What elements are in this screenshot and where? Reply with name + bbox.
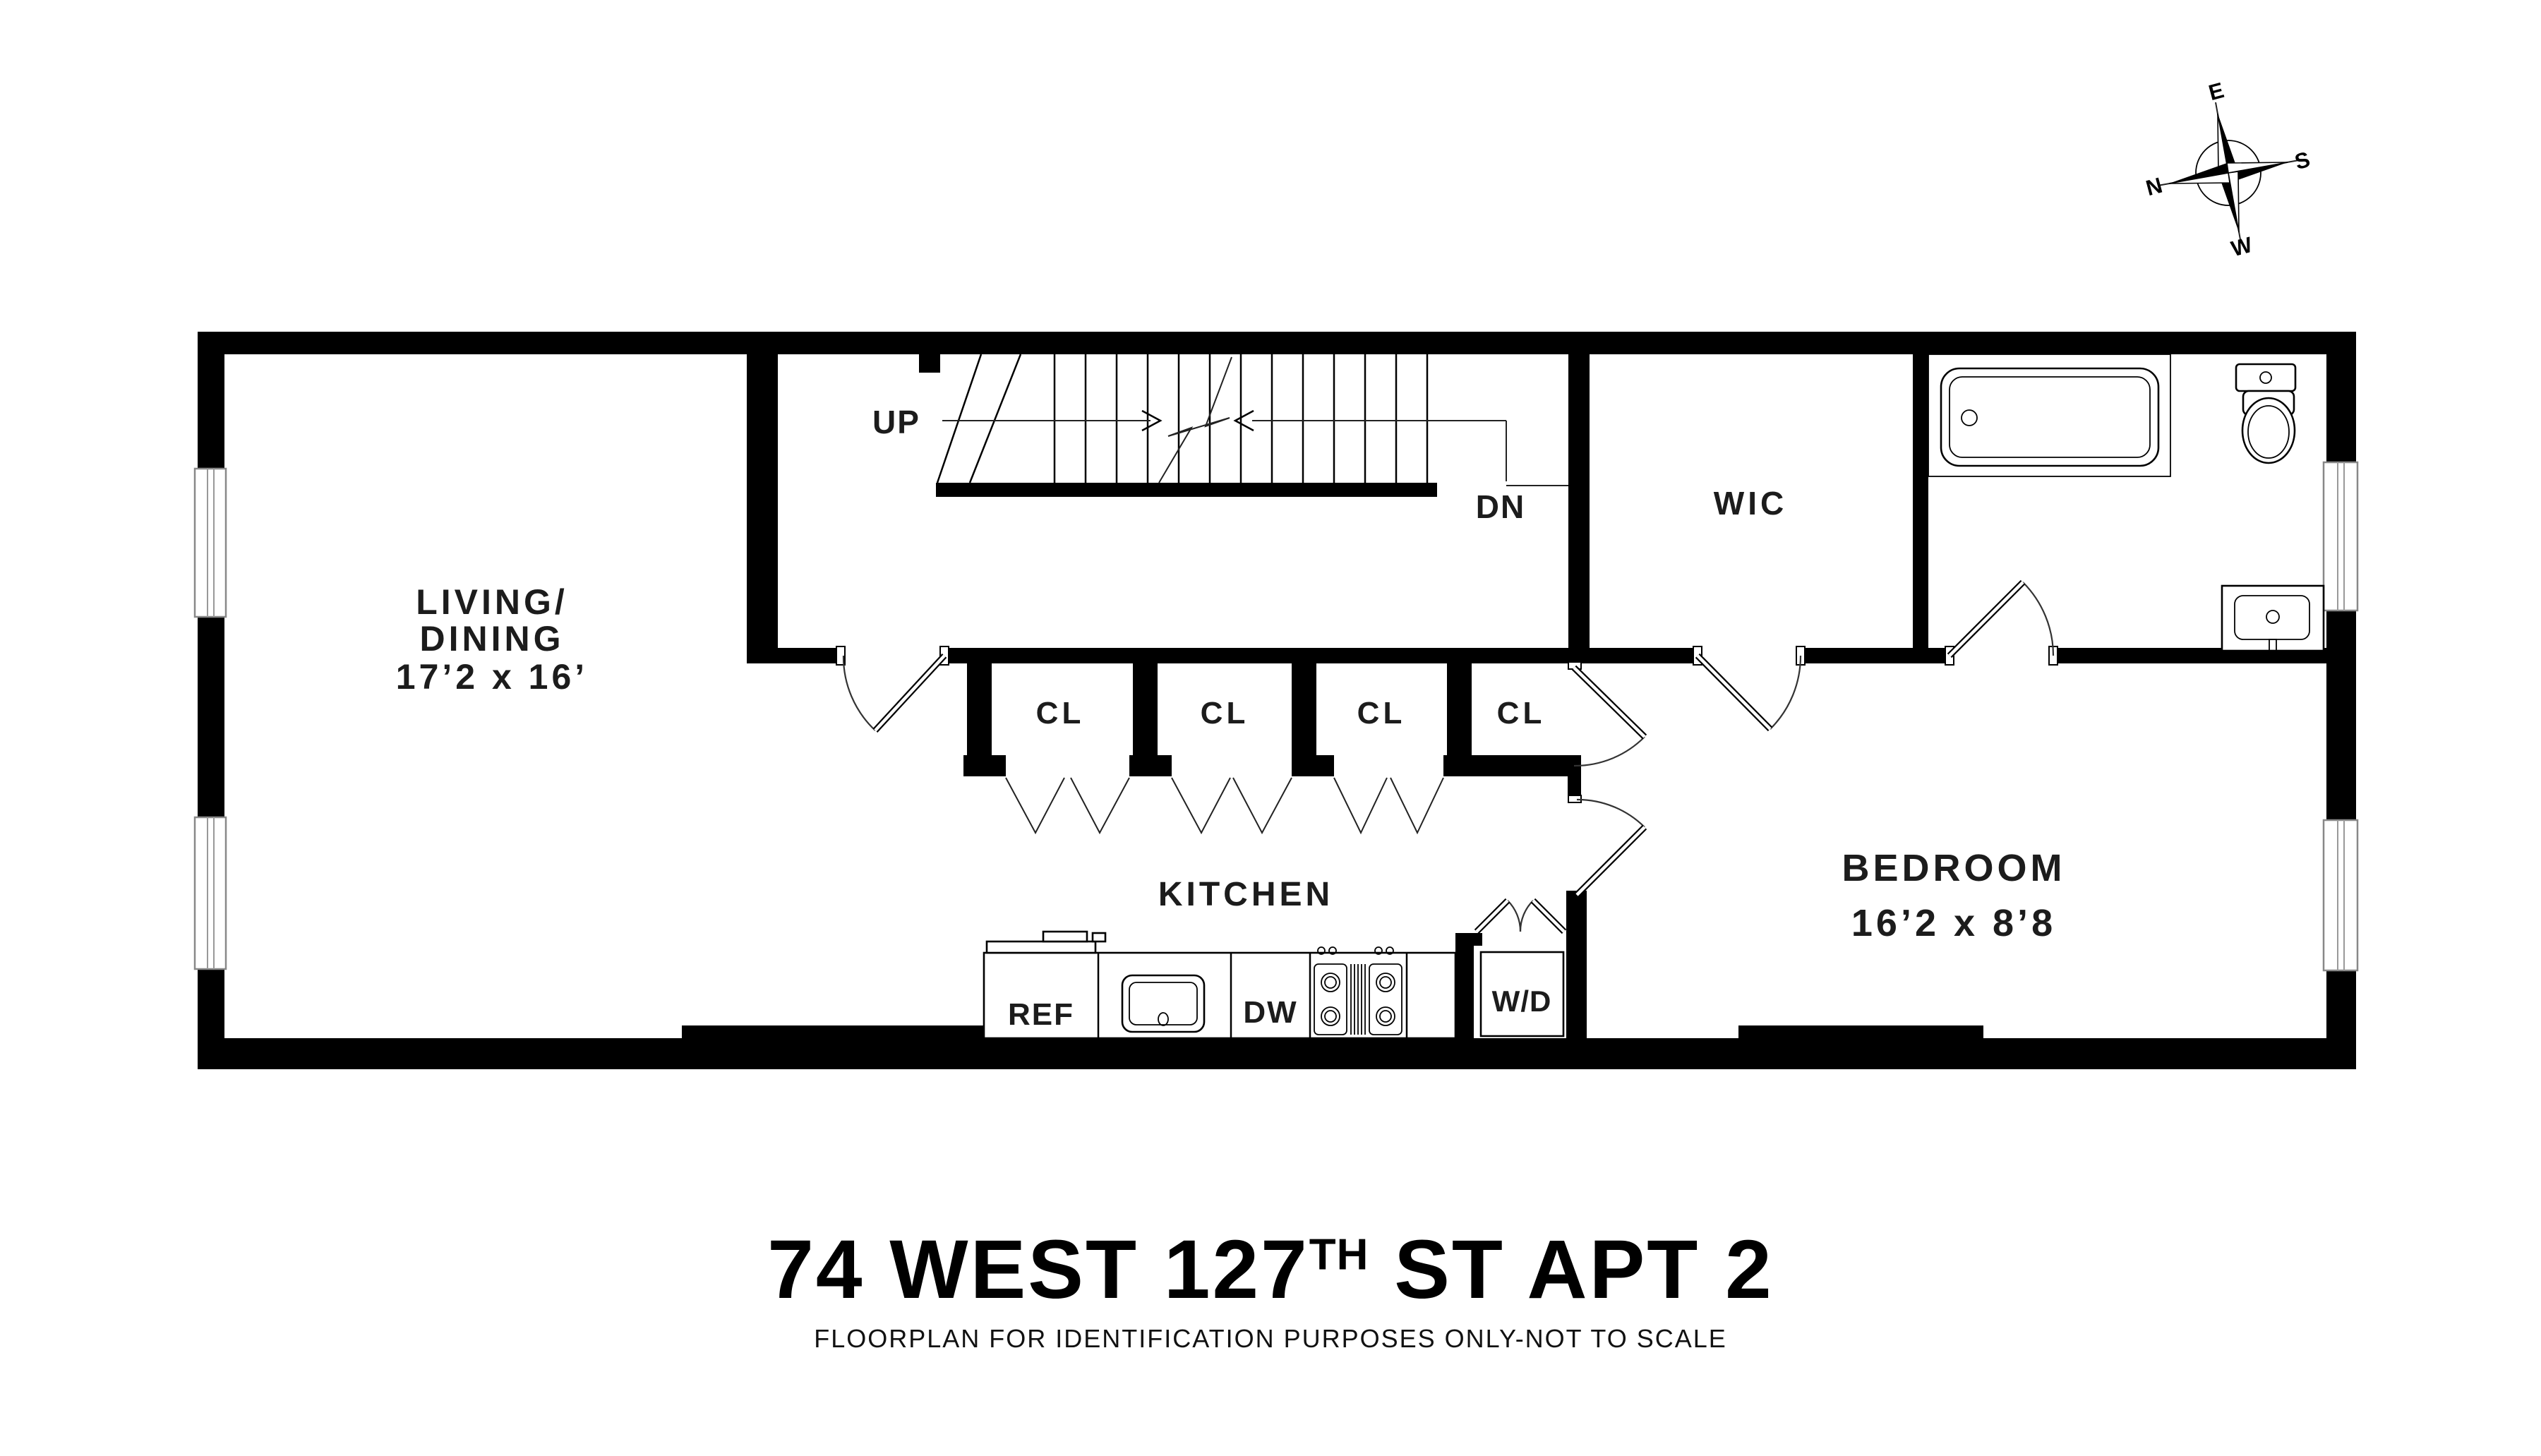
wall-segment bbox=[1443, 755, 1581, 776]
refrigerator bbox=[987, 932, 1105, 953]
bifold-door bbox=[1071, 778, 1129, 833]
door-bedroom bbox=[1568, 795, 1645, 895]
wall-segment bbox=[919, 354, 940, 373]
compass-label-w: W bbox=[2228, 232, 2255, 262]
closet-label: CL bbox=[1036, 696, 1085, 730]
compass-label-s: S bbox=[2292, 147, 2312, 174]
sink-vanity bbox=[2222, 586, 2324, 651]
compass-label-n: N bbox=[2144, 173, 2165, 201]
door-wic bbox=[1693, 646, 1805, 729]
bifold-door bbox=[1390, 778, 1443, 833]
living-room-label: LIVING/ bbox=[416, 582, 568, 622]
wall-segment bbox=[747, 648, 840, 663]
bifold-door bbox=[1233, 778, 1292, 833]
wall-segment-wic-right bbox=[1913, 332, 1928, 663]
stairs-up-label: UP bbox=[872, 404, 920, 440]
window bbox=[2324, 462, 2357, 610]
room-labels: LIVING/ DINING 17’2 x 16’ KITCHEN WIC BE… bbox=[396, 404, 2066, 1032]
stair-break-line bbox=[1159, 357, 1232, 483]
door-leaf bbox=[875, 656, 944, 730]
door-wd-closet bbox=[1477, 901, 1564, 932]
washer-dryer-label: W/D bbox=[1492, 985, 1552, 1018]
kitchen-label: KITCHEN bbox=[1158, 876, 1333, 913]
toilet bbox=[2236, 364, 2295, 463]
wall-segment bbox=[967, 663, 992, 755]
wall-segment-wic-left bbox=[1568, 332, 1590, 663]
kitchen-sink bbox=[1122, 975, 1204, 1032]
floorplan-page: E S W N LIVING/ DINING 17’2 x 16’ KITCHE… bbox=[0, 0, 2541, 1456]
wic-label: WIC bbox=[1714, 485, 1787, 522]
refrigerator-handle bbox=[1043, 932, 1087, 941]
wall-segment bbox=[1447, 663, 1472, 755]
wall-segment bbox=[1292, 755, 1334, 776]
door-swing-arc bbox=[1508, 901, 1520, 932]
dn-arrowhead-icon bbox=[1235, 411, 1254, 431]
door-bathroom bbox=[1945, 582, 2058, 665]
title-block: 74 WEST 127TH ST APT 2 FLOORPLAN FOR IDE… bbox=[0, 1227, 2541, 1354]
window bbox=[195, 817, 226, 969]
stair-tread bbox=[937, 354, 981, 483]
window-frame bbox=[2324, 820, 2357, 970]
door-swing-arc bbox=[843, 656, 875, 730]
door-closet4 bbox=[1568, 662, 1645, 766]
door-leaf bbox=[1698, 656, 1770, 729]
wall-segment bbox=[1455, 933, 1474, 1038]
stair-stringer bbox=[936, 483, 1437, 497]
door-leaf bbox=[1574, 668, 1645, 737]
title-disclaimer: FLOORPLAN FOR IDENTIFICATION PURPOSES ON… bbox=[0, 1324, 2541, 1354]
heater-living bbox=[682, 1025, 995, 1038]
title-part2: ST APT 2 bbox=[1369, 1223, 1773, 1316]
bifold-door bbox=[1006, 778, 1064, 833]
title-superscript: TH bbox=[1309, 1231, 1369, 1280]
toilet-bowl bbox=[2242, 398, 2295, 463]
compass-label-e: E bbox=[2206, 78, 2226, 105]
door-leaf bbox=[1533, 901, 1564, 932]
wall-segment bbox=[1568, 755, 1581, 801]
wall-segment bbox=[1474, 933, 1482, 946]
heater-bedroom bbox=[1738, 1025, 1983, 1038]
door-swing-arc bbox=[1770, 656, 1801, 729]
window bbox=[2324, 820, 2357, 970]
bedroom-label: BEDROOM bbox=[1842, 847, 2066, 889]
door-leaf bbox=[1477, 901, 1508, 932]
bathroom-fixtures bbox=[1928, 354, 2324, 651]
staircase bbox=[937, 354, 1568, 486]
closet-label: CL bbox=[1201, 696, 1249, 730]
closet-label: CL bbox=[1497, 696, 1546, 730]
toilet-tank bbox=[2236, 364, 2295, 391]
sink-basin bbox=[1122, 975, 1204, 1032]
window-frame bbox=[195, 469, 226, 617]
window-frame bbox=[2324, 462, 2357, 610]
living-room-label: DINING bbox=[420, 619, 565, 658]
door-swing-arc bbox=[1577, 800, 1645, 827]
closet-label: CL bbox=[1357, 696, 1406, 730]
wall-segment bbox=[198, 1038, 2356, 1069]
refrigerator-handle bbox=[1093, 933, 1105, 941]
bathtub bbox=[1928, 354, 2170, 476]
door-swing-arc bbox=[1520, 901, 1533, 932]
wall-segment bbox=[1292, 663, 1316, 755]
title-part1: 74 WEST 127 bbox=[767, 1223, 1309, 1316]
bifold-doors bbox=[1006, 778, 1443, 833]
wall-segment bbox=[1133, 663, 1158, 755]
compass-rose: E S W N bbox=[2144, 78, 2313, 261]
stair-tread bbox=[970, 354, 1021, 483]
door-leaf bbox=[1950, 582, 2023, 656]
bedroom-dims: 16’2 x 8’8 bbox=[1851, 902, 2056, 944]
window-frame bbox=[195, 817, 226, 969]
wall-segment bbox=[747, 332, 778, 663]
door-living-kitchen bbox=[836, 646, 949, 730]
stairs-dn-label: DN bbox=[1476, 488, 1525, 525]
wall-segment bbox=[1566, 891, 1587, 1038]
wall-segment bbox=[1129, 755, 1172, 776]
refrigerator-label: REF bbox=[1008, 997, 1074, 1032]
wall-segment bbox=[198, 332, 2356, 354]
dishwasher-label: DW bbox=[1243, 995, 1297, 1030]
door-swing-arc bbox=[1574, 737, 1645, 766]
refrigerator-door bbox=[987, 941, 1095, 953]
window bbox=[195, 469, 226, 617]
door-swing-arc bbox=[2023, 582, 2053, 656]
page-title: 74 WEST 127TH ST APT 2 bbox=[0, 1227, 2541, 1314]
bifold-door bbox=[1172, 778, 1230, 833]
wall-segment bbox=[963, 755, 1006, 776]
living-room-dims: 17’2 x 16’ bbox=[396, 657, 588, 697]
door-leaf bbox=[1577, 827, 1645, 895]
bifold-door bbox=[1334, 778, 1387, 833]
tub-outer bbox=[1941, 368, 2158, 466]
